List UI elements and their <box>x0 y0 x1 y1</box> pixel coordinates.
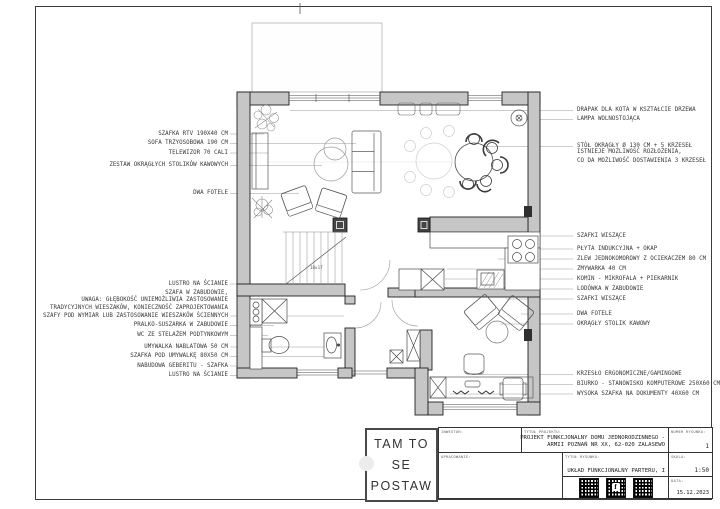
armchair-2 <box>315 188 347 219</box>
scale-cell: SKALA: 1:50 <box>669 453 712 477</box>
dining-chairs <box>460 134 508 192</box>
floor-lamp-icon <box>511 110 527 126</box>
annotation-label: NABUDOWA GEBERITU - SZAFKA <box>137 363 228 370</box>
annotation-label: SZAFKA POD UMYWALKĘ 80X50 CM <box>130 353 228 360</box>
logo-line: POSTAW <box>371 479 433 493</box>
kitchen-sink <box>477 270 504 289</box>
date-label: DATA: <box>671 478 683 483</box>
scale-value: 1:50 <box>695 467 709 474</box>
investor-label: INWESTOR: <box>441 429 463 434</box>
oven-column <box>421 269 444 290</box>
annotation-label: ISTNIEJE MOŻLIWOŚĆ ROZŁOŻENIA, <box>577 149 682 156</box>
annotation-label: SZAFKI WISZĄCE <box>577 296 626 303</box>
development-cell: OPRACOWANIE: <box>439 453 563 498</box>
date-cell: DATA: 15.12.2023 <box>669 477 712 498</box>
annotation-label: SOFA TRZYOSOBOWA 190 CM <box>148 140 228 147</box>
floor-plan-sheet: 18x17 <box>0 0 720 509</box>
annotation-label: SZAFY POD WYMIAR LUB ZASTOSOWANIE WIESZA… <box>43 313 228 320</box>
annotation-label: ZMYWARKA 40 CM <box>577 266 626 273</box>
qr-code-3 <box>633 478 653 498</box>
annotation-label: SZAFKI WISZĄCE <box>577 233 626 240</box>
drawing-number: 1 <box>705 443 709 450</box>
dining-furniture <box>398 103 527 198</box>
project-title-line2: ARMII POZNAŃ NR XX, 62-020 ZALASEWO <box>520 442 665 449</box>
annotation-label: TELEWIZOR 70 CALI <box>169 150 228 157</box>
logo-blob <box>359 456 374 471</box>
drawing-title-cell: TYTUŁ RYSUNKU: UKŁAD FUNKCJONALNY PARTER… <box>563 453 669 477</box>
annotation-label: LUSTRO NA ŚCIANIE <box>169 281 228 288</box>
office-chair <box>500 378 526 400</box>
drawing-title: UKŁAD FUNKCJONALNY PARTERU, I <box>567 468 665 474</box>
company-logo: TAM TO SE POSTAW <box>365 428 438 502</box>
annotation-label: WYSOKA SZAFKA NA DOKUMENTY 40X60 CM <box>577 391 699 398</box>
office-armchair-1 <box>464 294 501 330</box>
hob <box>508 236 538 263</box>
living-room-furniture <box>252 105 381 218</box>
table-extended-ghost <box>405 126 455 198</box>
washer-dryer <box>262 299 287 323</box>
desk-chair <box>464 354 484 374</box>
annotation-label: UMYWALKA NABLATOWA 50 CM <box>144 344 228 351</box>
annotation-label: LUSTRO NA ŚCIANIE <box>169 372 228 379</box>
drawing-number-cell: NUMER RYSUNKU: 1 <box>669 428 712 453</box>
annotation-label: ZLEW JEDNOKOMOROWY Z OCIEKACZEM 80 CM <box>577 256 706 263</box>
armchair-1 <box>281 185 314 216</box>
desk <box>430 377 533 398</box>
stairs <box>283 232 348 285</box>
geberit-cabinet <box>250 327 262 369</box>
annotation-label: BIURKO - STANOWISKO KOMPUTEROWE 250X60 C… <box>577 381 720 388</box>
drawing-title-label: TYTUŁ RYSUNKU: <box>565 454 600 459</box>
kitchen <box>399 232 540 290</box>
rtv-cabinet <box>252 133 268 189</box>
logo-line: TAM TO <box>374 437 429 451</box>
stairs-note: 18x17 <box>310 265 323 270</box>
investor-cell: INWESTOR: <box>439 428 522 453</box>
round-coffee-table <box>486 321 508 343</box>
logo-line: SE <box>392 458 412 472</box>
annotation-label: CO DA MOŻLIWOŚĆ DOSTAWIENIA 3 KRZESEŁ <box>577 158 706 165</box>
hall-shafts <box>390 330 420 363</box>
toilet <box>262 337 289 354</box>
project-title-cell: TYTUŁ PROJEKTU: PROJEKT FUNKCJONALNY DOM… <box>522 428 669 453</box>
development-label: OPRACOWANIE: <box>441 454 471 459</box>
annotation-label: LODÓWKA W ZABUDOWIE <box>577 286 643 293</box>
qr-cell: f <box>563 477 669 498</box>
annotation-label: TRADYCYJNYCH WIESZAKÓW, KONIECZNOŚĆ ZAPR… <box>50 305 228 312</box>
annotation-label: PRALKO-SUSZARKA W ZABUDOWIE <box>134 322 228 329</box>
annotation-label: DWA FOTELE <box>193 190 228 197</box>
annotation-label: KRZESŁO ERGONOMICZNE/GAMINGOWE <box>577 371 682 378</box>
annotation-label: LAMPA WOLNOSTOJĄCA <box>577 116 640 123</box>
project-title-label: TYTUŁ PROJEKTU: <box>524 429 561 434</box>
scale-label: SKALA: <box>671 454 686 459</box>
facebook-icon: f <box>612 483 620 491</box>
annotation-label: KOMIN - MIKROFALA + PIEKARNIK <box>577 276 678 283</box>
terrace-outline <box>252 23 382 92</box>
office-furniture <box>430 294 534 400</box>
bathroom-shelf <box>250 299 262 325</box>
annotation-label: DRAPAK DLA KOTA W KSZTAŁCIE DRZEWA <box>577 107 696 114</box>
dishwasher <box>399 269 421 290</box>
annotation-label: SZAFKA RTV 190X40 CM <box>158 131 228 138</box>
project-title-line1: PROJEKT FUNKCJONALNY DOMU JEDNORODZINNEG… <box>520 435 665 442</box>
annotation-label: OKRĄGŁY STOLIK KAWOWY <box>577 321 650 328</box>
annotation-label: WC ZE STELAŻEM PODTYNKOWYM <box>137 332 228 339</box>
annotation-label: PŁYTA INDUKCYJNA + OKAP <box>577 246 657 253</box>
annotation-label: ZESTAW OKRĄGŁYCH STOLIKÓW KAWOWYCH <box>109 162 228 169</box>
coffee-tables <box>314 138 348 181</box>
drawing-number-label: NUMER RYSUNKU: <box>671 429 706 434</box>
date-value: 15.12.2023 <box>677 490 709 496</box>
title-block: INWESTOR: TYTUŁ PROJEKTU: PROJEKT FUNKCJ… <box>438 427 713 499</box>
annotation-label: UWAGA: GŁĘBOKOŚĆ UNIEMOŻLIWIA ZASTOSOWAN… <box>81 297 228 304</box>
plant-icon <box>252 196 273 218</box>
qr-code-2: f <box>606 478 626 498</box>
annotation-label: DWA FOTELE <box>577 311 612 318</box>
bathroom <box>250 299 341 369</box>
bathroom-sink <box>324 333 341 358</box>
qr-code-1 <box>579 478 599 498</box>
cat-tree-icon <box>254 105 279 131</box>
